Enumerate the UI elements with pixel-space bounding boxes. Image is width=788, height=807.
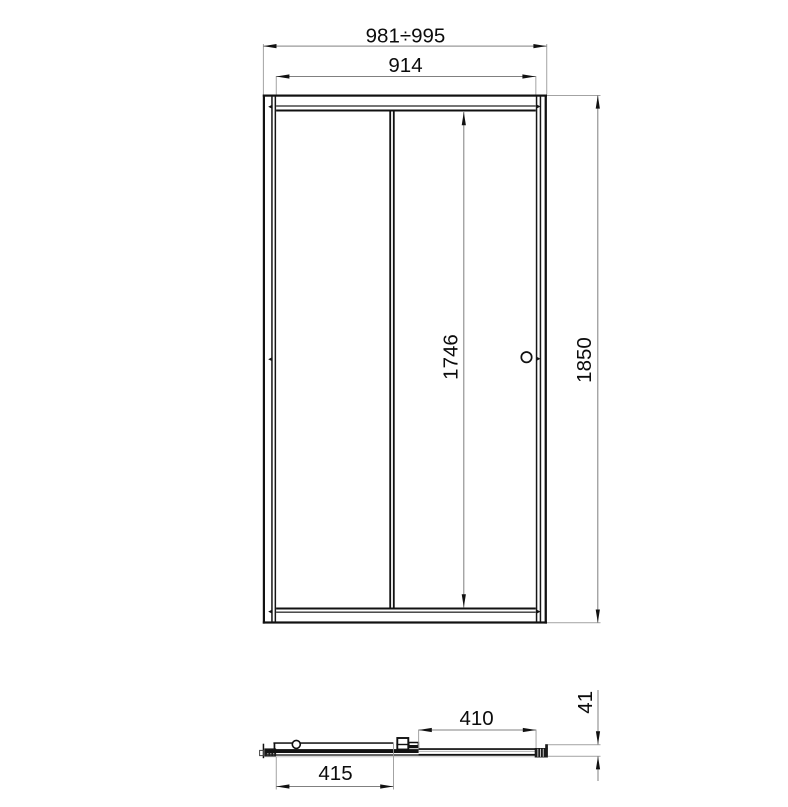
svg-text:1850: 1850 [573,337,596,383]
svg-text:914: 914 [388,54,422,77]
svg-text:410: 410 [459,707,493,730]
svg-text:415: 415 [318,762,352,785]
svg-text:1746: 1746 [440,334,463,380]
svg-text:981÷995: 981÷995 [366,25,446,48]
svg-text:41: 41 [574,691,597,714]
